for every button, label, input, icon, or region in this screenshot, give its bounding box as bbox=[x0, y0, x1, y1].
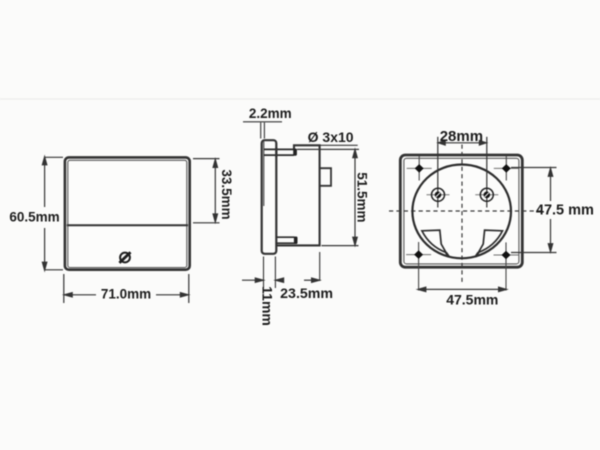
svg-text:2.2mm: 2.2mm bbox=[249, 106, 292, 121]
svg-text:11mm: 11mm bbox=[260, 286, 276, 326]
svg-text:28mm: 28mm bbox=[440, 128, 483, 145]
svg-text:23.5mm: 23.5mm bbox=[280, 286, 333, 302]
svg-text:47.5mm: 47.5mm bbox=[446, 291, 498, 307]
svg-text:71.0mm: 71.0mm bbox=[101, 287, 151, 302]
svg-text:51.5mm: 51.5mm bbox=[355, 172, 370, 222]
svg-text:Ø 3x10: Ø 3x10 bbox=[308, 129, 354, 145]
svg-text:33.5mm: 33.5mm bbox=[219, 169, 234, 219]
svg-text:60.5mm: 60.5mm bbox=[9, 210, 59, 225]
svg-text:47.5 mm: 47.5 mm bbox=[536, 203, 594, 219]
